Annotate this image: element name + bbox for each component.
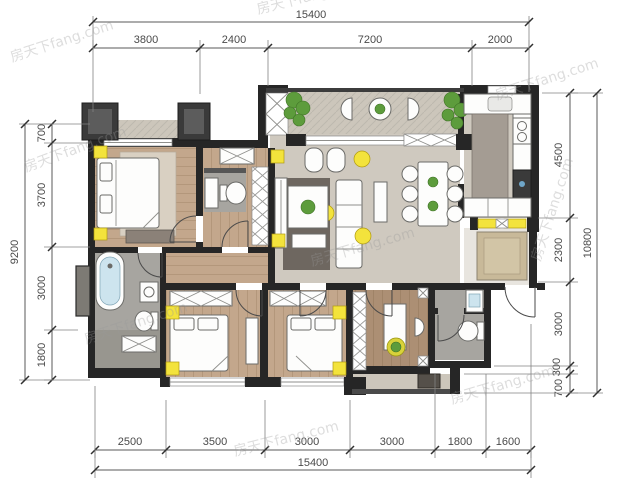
master-closet-wall-lower xyxy=(196,242,203,247)
bedside-table xyxy=(166,362,179,375)
bedroom-window-pier-center xyxy=(245,377,281,387)
bathroom2-bottom-wall xyxy=(430,361,491,368)
entry-hall xyxy=(477,232,527,280)
study-bathroom2-wall xyxy=(428,290,435,368)
kitchen-threshold-stub-right xyxy=(527,217,535,232)
kitchen-threshold-stub-left xyxy=(470,217,478,230)
entry-wall-end xyxy=(537,283,545,290)
dining-chair xyxy=(402,206,418,222)
bedside-table xyxy=(333,306,346,319)
entry-mat-inner xyxy=(484,238,520,274)
corridor-planks xyxy=(166,253,270,283)
bathroom2-partition-1 xyxy=(434,308,438,314)
kitchen-right-wall xyxy=(531,85,539,232)
kitchen-furniture xyxy=(464,94,531,228)
dim-bottom-seg-5: 1600 xyxy=(496,436,520,448)
dresser xyxy=(246,318,258,364)
dining-chair xyxy=(447,206,463,222)
corridor-bottom-wall-1 xyxy=(160,283,236,290)
bedroom-window-pier-left xyxy=(160,377,170,387)
corridor-bottom-wall-3 xyxy=(326,283,366,290)
bedroom3-study-wall xyxy=(346,290,353,378)
toilet-icon xyxy=(226,182,246,204)
dining-table xyxy=(418,162,448,226)
dim-left-seg-0: 700 xyxy=(36,124,48,142)
pillow xyxy=(100,195,112,213)
sink-basin xyxy=(469,294,480,307)
ornate-column-right-inner xyxy=(184,109,204,134)
dim-top-seg-1: 2400 xyxy=(222,34,246,46)
watermark-text: 房天下fang.com xyxy=(232,418,340,460)
vanity xyxy=(205,178,218,208)
corridor-top-wall-3 xyxy=(248,247,268,253)
dimension-bottom: 2500 3500 3000 3000 1800 1600 15400 xyxy=(95,436,531,470)
dim-left-seg-3: 1800 xyxy=(36,343,48,367)
kitchen-counter-bottom xyxy=(464,198,531,217)
closet-living-wall xyxy=(268,148,275,283)
entry-door-arc xyxy=(505,287,535,317)
dim-top-total: 15400 xyxy=(296,9,327,21)
balcony-wall-stub-left xyxy=(286,134,306,146)
balcony-top-rail xyxy=(266,88,464,92)
armchair xyxy=(327,148,345,172)
bathroom-bay-window xyxy=(76,266,90,316)
bathroom2-right-wall xyxy=(484,290,491,368)
dim-right-total: 10800 xyxy=(582,228,594,259)
watermark-text: 房天下fang.com xyxy=(493,55,600,103)
dining-chair xyxy=(402,166,418,182)
kitchen-island xyxy=(472,114,508,198)
dim-right-seg-1: 2300 xyxy=(553,238,565,262)
ensuite-partition xyxy=(204,168,246,173)
closet-top-wall xyxy=(196,140,268,148)
floor-plan: 15400 3800 2400 7200 2000 2500 3500 3000… xyxy=(0,0,619,482)
dimension-right: 4500 2300 3000 300 700 10800 xyxy=(551,93,597,397)
dim-bottom-total: 15400 xyxy=(298,457,329,469)
dim-bottom-seg-0: 2500 xyxy=(118,436,142,448)
console-table xyxy=(374,182,387,222)
watermark-text: 房天下fang.com xyxy=(8,17,115,65)
pillow xyxy=(100,163,112,181)
dining-plant xyxy=(428,177,438,187)
dimension-top: 15400 3800 2400 7200 2000 xyxy=(93,9,529,48)
dim-bottom-seg-3: 3000 xyxy=(380,436,404,448)
appliance-dial xyxy=(519,181,525,187)
corridor-top-wall-2 xyxy=(162,247,222,253)
bookshelf-cross xyxy=(353,292,366,370)
dining-chair xyxy=(447,186,463,202)
master-bedroom-furniture xyxy=(94,146,176,243)
dim-bottom-seg-4: 1800 xyxy=(448,436,472,448)
bottom-left-wall xyxy=(88,368,166,378)
dining-chair xyxy=(402,186,418,202)
pillow xyxy=(291,318,311,330)
dim-top-seg-2: 7200 xyxy=(358,34,382,46)
armchair xyxy=(305,148,323,172)
tray-table xyxy=(292,234,326,248)
side-cabinet xyxy=(272,234,285,247)
floor-plan-drawing: 15400 3800 2400 7200 2000 2500 3500 3000… xyxy=(0,0,619,482)
dim-bottom-seg-1: 3500 xyxy=(203,436,227,448)
pillow xyxy=(315,318,335,330)
dining-plant xyxy=(428,201,438,211)
dim-top-seg-0: 3800 xyxy=(134,34,158,46)
master-closet-wall-upper xyxy=(196,148,203,216)
rear-balcony-rail xyxy=(352,389,460,394)
patio-table-plant xyxy=(375,104,385,114)
pillow xyxy=(198,318,218,330)
wardrobe-cross xyxy=(252,167,268,245)
corridor-bottom-wall-4 xyxy=(392,283,505,290)
side-cabinet xyxy=(271,150,284,163)
dim-right-seg-4: 700 xyxy=(553,379,565,397)
dim-left-seg-2: 3000 xyxy=(36,276,48,300)
bathtub-drain xyxy=(108,264,113,269)
bedside-table xyxy=(333,362,346,375)
dim-left-total: 9200 xyxy=(9,240,21,264)
coffee-table-plant xyxy=(301,200,315,214)
ac-unit xyxy=(418,374,440,388)
bedroom2-bedroom3-wall xyxy=(260,290,268,377)
watermark-text: 房天下fang.com xyxy=(449,363,557,408)
round-side-table xyxy=(354,151,370,167)
dim-right-seg-2: 3000 xyxy=(553,312,565,336)
bedside-table xyxy=(94,228,107,240)
dim-left-seg-1: 3700 xyxy=(36,183,48,207)
bathroom-vanity xyxy=(140,282,158,302)
balcony-cabinet xyxy=(404,134,458,146)
toilet-icon xyxy=(458,321,478,341)
wardrobe xyxy=(270,291,326,306)
corridor-bottom-wall-2 xyxy=(262,283,300,290)
pillow xyxy=(174,318,194,330)
study-plant xyxy=(391,342,401,352)
dining-chair xyxy=(447,166,463,182)
dim-top-seg-3: 2000 xyxy=(488,34,512,46)
dining-furniture xyxy=(402,162,463,226)
bed-bench xyxy=(126,230,174,243)
